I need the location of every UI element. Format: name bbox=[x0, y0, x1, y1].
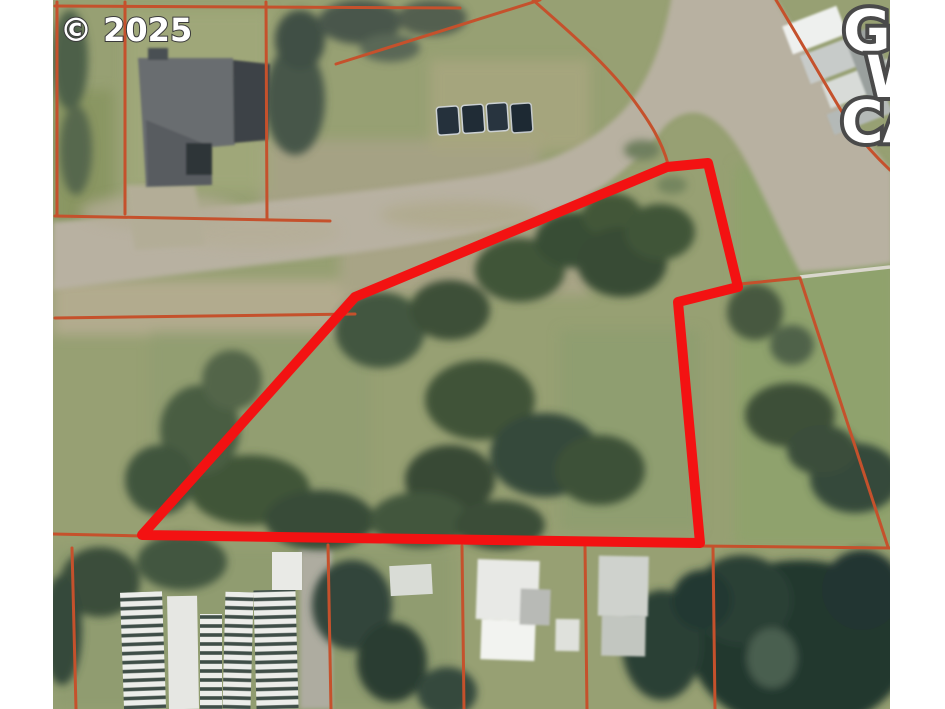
parcel-map-screenshot: GE W CA © 2025 bbox=[0, 0, 945, 709]
aerial-photo: GE W CA © 2025 bbox=[42, 0, 929, 709]
white-margin-left bbox=[0, 0, 53, 709]
copyright-watermark: © 2025 bbox=[60, 11, 192, 49]
map-canvas: GE W CA © 2025 bbox=[0, 0, 945, 709]
white-margin-right bbox=[890, 0, 945, 709]
